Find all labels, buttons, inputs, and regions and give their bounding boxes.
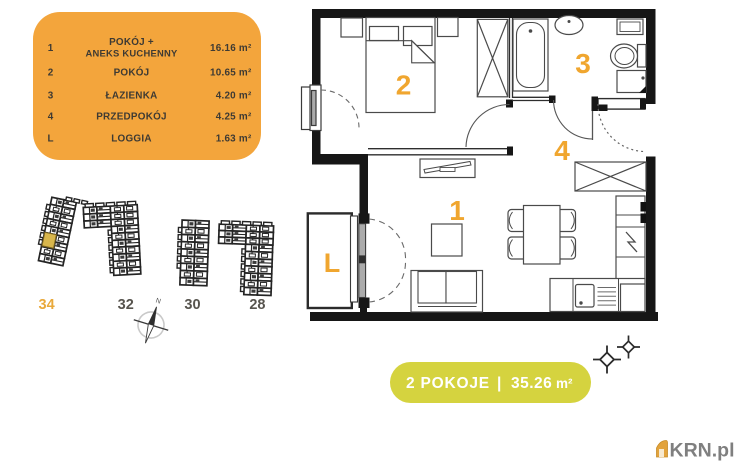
svg-text:POKÓJ +: POKÓJ + — [109, 36, 154, 48]
svg-text:3: 3 — [575, 48, 591, 79]
svg-text:34: 34 — [39, 297, 55, 313]
svg-text:32: 32 — [118, 297, 134, 313]
svg-text:ŁAZIENKA: ŁAZIENKA — [106, 91, 158, 102]
svg-text:1: 1 — [48, 43, 54, 54]
svg-text:35.26: 35.26 — [511, 375, 552, 392]
svg-text:ANEKS KUCHENNY: ANEKS KUCHENNY — [85, 48, 178, 59]
svg-text:3: 3 — [48, 91, 54, 102]
svg-text:KRN.pl: KRN.pl — [670, 440, 735, 462]
svg-text:|: | — [497, 375, 501, 392]
svg-text:PRZEDPOKÓJ: PRZEDPOKÓJ — [96, 111, 167, 123]
svg-text:4: 4 — [48, 112, 54, 123]
svg-text:L: L — [47, 134, 53, 145]
svg-text:4: 4 — [554, 135, 570, 166]
svg-text:2 POKOJE: 2 POKOJE — [406, 375, 490, 392]
svg-text:30: 30 — [184, 297, 200, 313]
svg-text:16.16 m²: 16.16 m² — [210, 43, 252, 54]
svg-text:LOGGIA: LOGGIA — [111, 134, 151, 145]
svg-text:m²: m² — [556, 376, 573, 391]
svg-text:4.25 m²: 4.25 m² — [216, 112, 252, 123]
svg-text:2: 2 — [396, 70, 412, 101]
svg-text:1: 1 — [449, 195, 465, 226]
svg-text:POKÓJ: POKÓJ — [114, 67, 150, 79]
svg-text:28: 28 — [249, 297, 265, 313]
svg-text:1.63 m²: 1.63 m² — [216, 134, 252, 145]
svg-text:10.65 m²: 10.65 m² — [210, 68, 252, 79]
svg-text:4.20 m²: 4.20 m² — [216, 91, 252, 102]
svg-text:L: L — [324, 248, 341, 278]
svg-text:2: 2 — [48, 68, 54, 79]
